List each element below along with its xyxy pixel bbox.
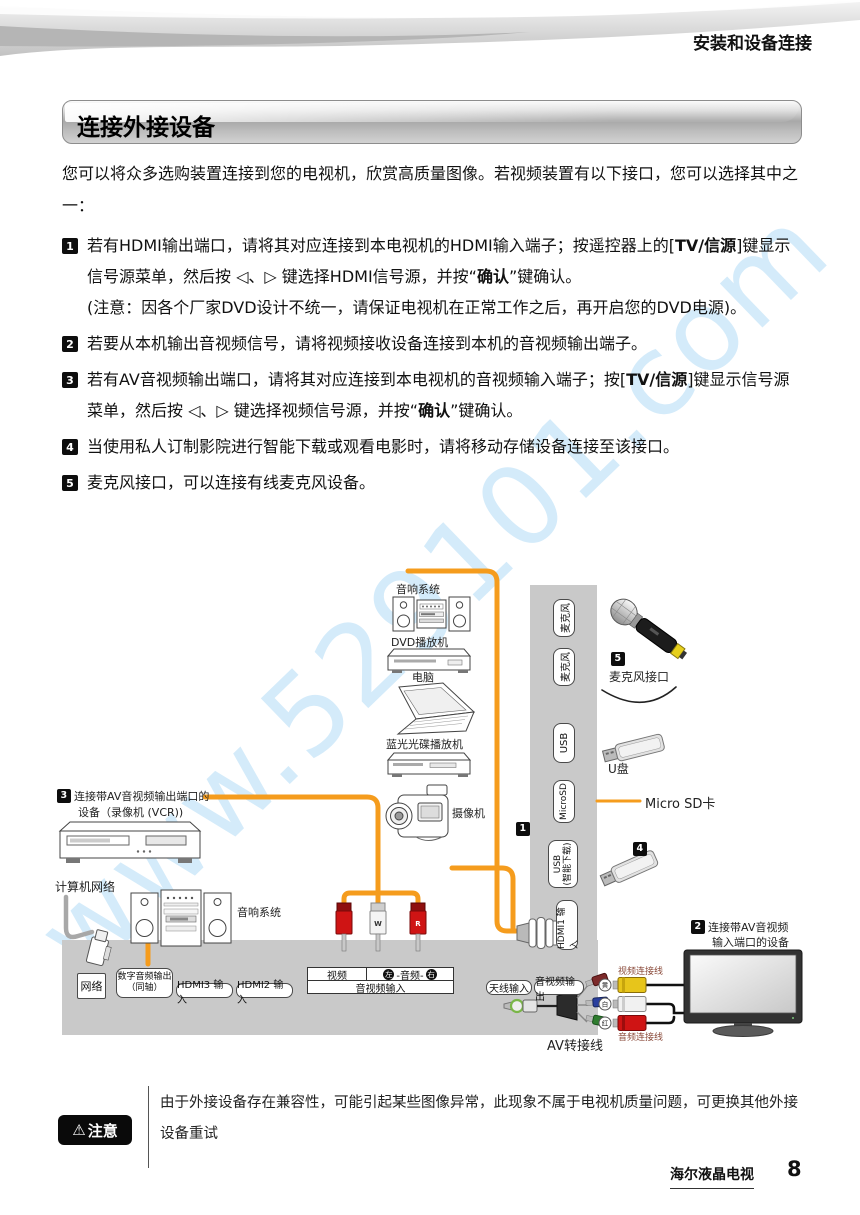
diagram-badge-5: 5 (611, 652, 625, 666)
av-input-cell: 音视频输入 (307, 980, 454, 994)
item-text: 若有AV音视频输出端口，请将其对应连接到本电视机的音视频输入端子；按[TV/信源… (87, 364, 804, 426)
port-mic-2: 麦克风 (553, 648, 575, 686)
audio-left-badge: 左 (383, 969, 394, 980)
audio-right-badge: 右 (426, 969, 437, 980)
laptop-illustration (398, 683, 474, 734)
caution-label: 注意 (88, 1120, 118, 1141)
svg-text:红: 红 (602, 1019, 609, 1028)
instruction-item: 4当使用私人订制影院进行智能下载或观看电影时，请将移动存储设备连接至该接口。 (62, 431, 804, 462)
label-mic-port: 麦克风接口 (609, 668, 669, 685)
label-camcorder: 摄像机 (452, 805, 485, 821)
item-number-badge: 2 (62, 336, 78, 352)
label-av-adapter: AV转接线 (547, 1035, 603, 1054)
svg-text:R: R (415, 920, 421, 928)
rca-cable-set: 黄 白 红 (599, 978, 646, 1031)
svg-text:W: W (374, 920, 382, 928)
label-audio-system-bottom: 音响系统 (237, 904, 281, 920)
item-text: 若有HDMI输出端口，请将其对应连接到本电视机的HDMI输入端子；按遥控器上的[… (87, 230, 804, 323)
audio-system-top-illustration (393, 597, 470, 631)
bluray-player-illustration (388, 753, 470, 777)
label-audio-cable: 音频连接线 (618, 1030, 663, 1043)
note-text: 由于外接设备存在兼容性，可能引起某些图像异常，此现象不属于电视机质量问题，可更换… (160, 1088, 806, 1150)
port-network: 网络 (77, 973, 106, 999)
port-microsd: MicroSD (553, 780, 575, 823)
instruction-list: 1若有HDMI输出端口，请将其对应连接到本电视机的HDMI输入端子；按遥控器上的… (62, 230, 804, 498)
svg-text:白: 白 (602, 1000, 609, 1009)
item-number-badge: 1 (62, 238, 78, 254)
port-mic-1: 麦克风 (553, 599, 575, 637)
port-hdmi3-input: HDMI3 输入 (176, 983, 233, 998)
svg-text:黄: 黄 (602, 981, 609, 990)
diagram-badge-3: 3 (57, 789, 71, 803)
port-hdmi2-input: HDMI2 输入 (236, 983, 293, 998)
port-hdmi1-input: HDMI1 输入 (556, 900, 578, 950)
label-bluray-player: 蓝光光碟播放机 (386, 736, 463, 752)
note-divider (148, 1086, 149, 1168)
label-microsd-card: Micro SD卡 (645, 793, 715, 812)
instruction-item: 3若有AV音视频输出端口，请将其对应连接到本电视机的音视频输入端子；按[TV/信… (62, 364, 804, 426)
diagram-badge-2: 2 (691, 920, 705, 934)
vcr-illustration (60, 822, 200, 863)
item-number-badge: 4 (62, 439, 78, 455)
manual-page: www.529101.com 安装和设备连接 连接外接设备 您可以将众多选购装置… (0, 0, 860, 1215)
port-digital-audio-out: 数字音频输出 （同轴） (116, 968, 173, 998)
instruction-item: 1若有HDMI输出端口，请将其对应连接到本电视机的HDMI输入端子；按遥控器上的… (62, 230, 804, 323)
intro-paragraph: 您可以将众多选购装置连接到您的电视机，欣赏高质量图像。若视频装置有以下接口，您可… (62, 158, 804, 222)
page-header-title: 安装和设备连接 (693, 29, 812, 54)
label-vcr-line2: 设备（录像机 (VCR)) (78, 804, 183, 820)
label-vcr-line1: 连接带AV音视频输出端口的 (74, 788, 209, 804)
item-text: 麦克风接口，可以连接有线麦克风设备。 (87, 467, 804, 498)
label-usb-drive: U盘 (608, 760, 629, 777)
label-computer-network: 计算机网络 (55, 878, 115, 895)
label-tv-line2: 输入端口的设备 (712, 934, 789, 950)
section-title: 连接外接设备 (77, 108, 215, 142)
port-av-output: 音视频输出 (534, 980, 584, 995)
camcorder-illustration (386, 785, 448, 841)
body-text: 您可以将众多选购装置连接到您的电视机，欣赏高质量图像。若视频装置有以下接口，您可… (62, 158, 804, 503)
warning-icon: ⚠ (72, 1121, 85, 1139)
item-number-badge: 5 (62, 475, 78, 491)
caution-badge: ⚠ 注意 (58, 1115, 132, 1145)
item-number-badge: 3 (62, 372, 78, 388)
section-title-bar: 连接外接设备 (62, 100, 802, 144)
audio-system-bottom-illustration (131, 890, 231, 946)
label-video-cable: 视频连接线 (618, 964, 663, 977)
label-dvd-player: DVD播放机 (391, 634, 448, 650)
label-audio-system-top: 音响系统 (396, 581, 440, 597)
footer-page-number: 8 (787, 1157, 802, 1181)
tv-illustration (684, 950, 802, 1037)
label-tv-line1: 连接带AV音视频 (708, 919, 788, 935)
port-antenna-input: 天线输入 (486, 980, 532, 995)
instruction-item: 2若要从本机输出音视频信号，请将视频接收设备连接到本机的音视频输出端子。 (62, 328, 804, 359)
instruction-item: 5麦克风接口，可以连接有线麦克风设备。 (62, 467, 804, 498)
diagram-badge-4: 4 (633, 842, 647, 856)
item-text: 当使用私人订制影院进行智能下载或观看电影时，请将移动存储设备连接至该接口。 (87, 431, 804, 462)
diagram-badge-1: 1 (516, 822, 530, 836)
footer-brand: 海尔液晶电视 (670, 1164, 754, 1189)
label-computer: 电脑 (412, 669, 434, 685)
usb-drive-2-illustration (599, 849, 659, 888)
port-usb: USB (553, 723, 575, 763)
item-text: 若要从本机输出音视频信号，请将视频接收设备连接到本机的音视频输出端子。 (87, 328, 804, 359)
av-input-port-table: 视频 左 -音频- 右 音视频输入 (307, 967, 454, 994)
port-usb-smart-download: USB (智能下载) (548, 840, 578, 888)
